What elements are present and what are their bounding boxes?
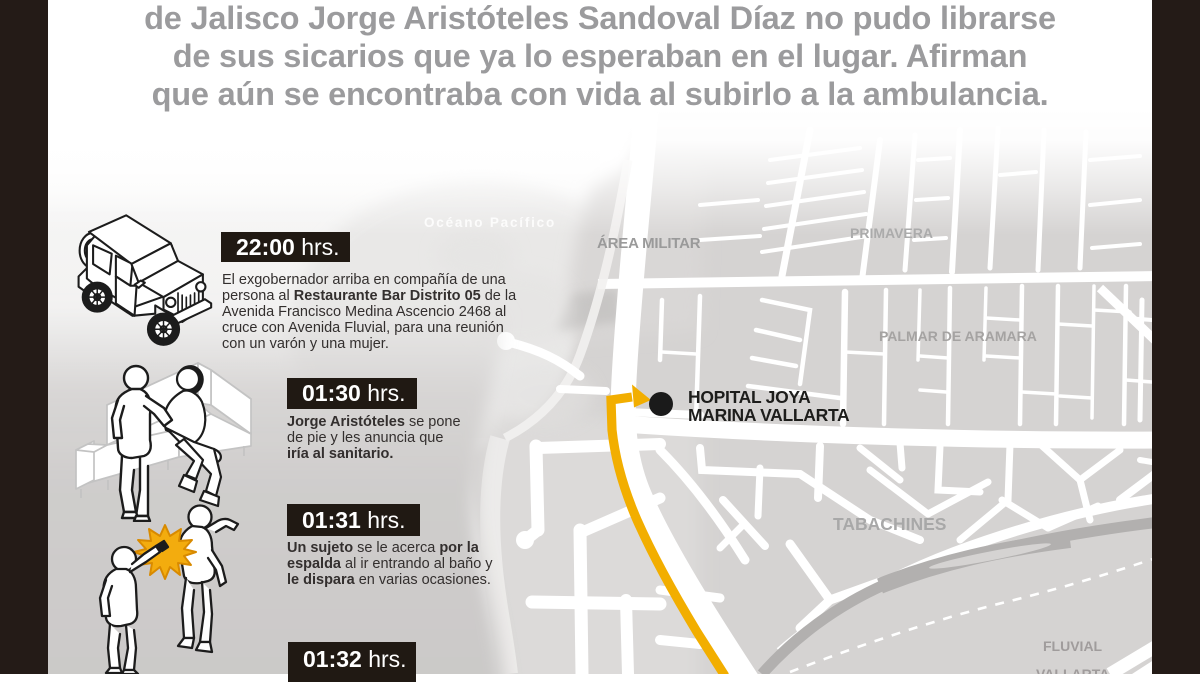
svg-text:HOPITAL JOYA: HOPITAL JOYA — [688, 387, 811, 407]
svg-text:Océano Pacífico: Océano Pacífico — [424, 215, 556, 230]
svg-text:PALMAR DE ARAMARA: PALMAR DE ARAMARA — [879, 328, 1037, 344]
svg-text:PRIMAVERA: PRIMAVERA — [850, 225, 933, 241]
svg-text:MARINA VALLARTA: MARINA VALLARTA — [688, 405, 850, 425]
svg-text:ÁREA MILITAR: ÁREA MILITAR — [597, 235, 701, 252]
svg-text:VALLARTA: VALLARTA — [1036, 666, 1109, 674]
svg-text:FLUVIAL: FLUVIAL — [1043, 638, 1103, 654]
svg-text:TABACHINES: TABACHINES — [833, 514, 946, 534]
